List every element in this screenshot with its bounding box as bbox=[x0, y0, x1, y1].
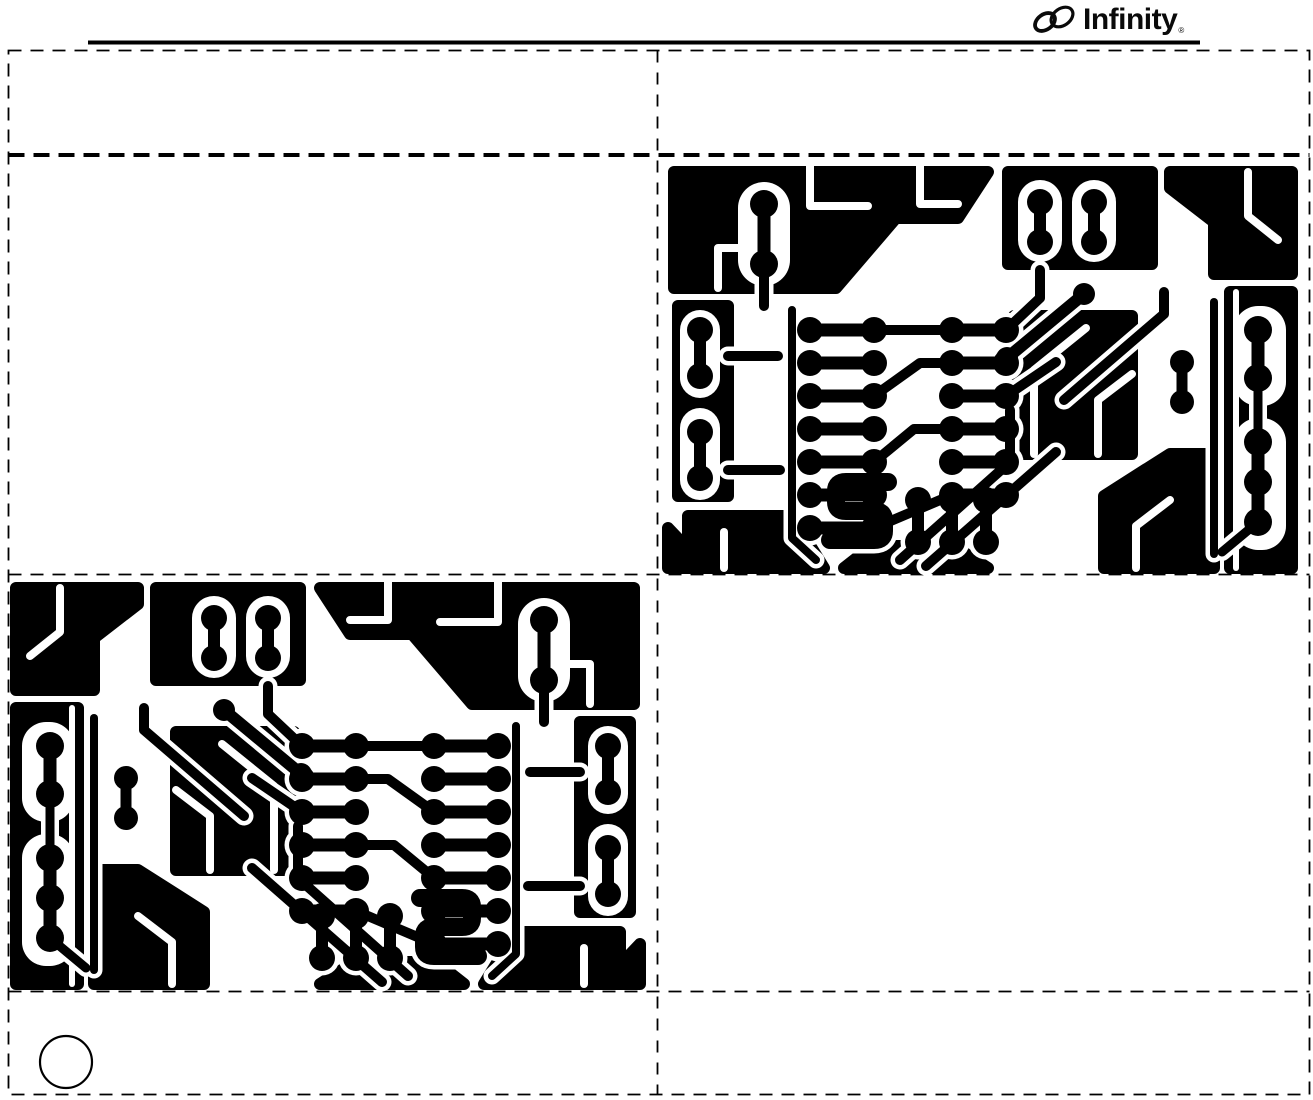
page-art bbox=[0, 0, 1313, 1100]
manual-page: Infinity ® bbox=[0, 0, 1313, 1100]
pcb-foil-pattern-bottom-left bbox=[16, 582, 640, 984]
pcb-foil-pattern-top-right bbox=[668, 166, 1292, 568]
registration-circle bbox=[40, 1036, 92, 1088]
